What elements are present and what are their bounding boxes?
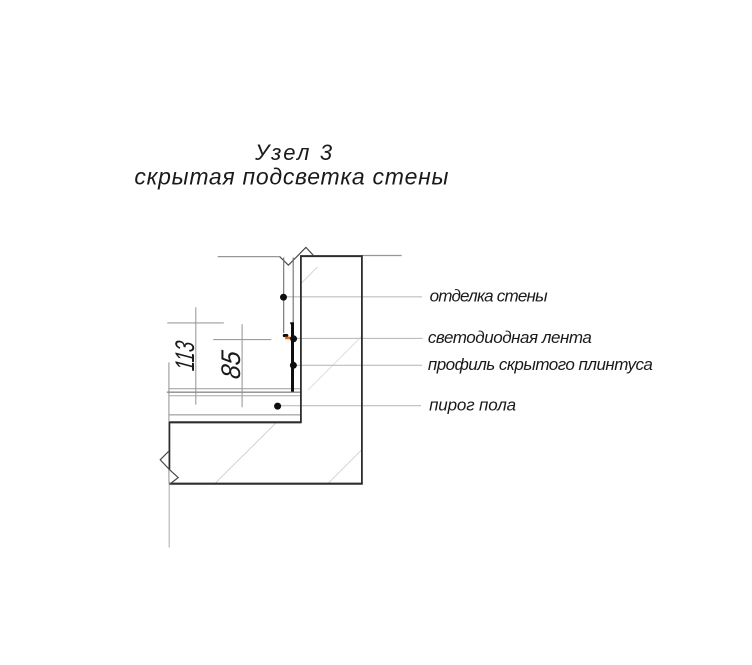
svg-text:профиль скрытого плинтуса: профиль скрытого плинтуса [428, 355, 653, 374]
svg-text:пирог пола: пирог пола [429, 395, 516, 414]
svg-text:Узел 3: Узел 3 [254, 140, 333, 165]
svg-text:скрытая подсветка стены: скрытая подсветка стены [134, 163, 448, 189]
svg-text:светодиодная лента: светодиодная лента [428, 328, 592, 347]
svg-text:отделка стены: отделка стены [430, 287, 548, 306]
svg-text:113: 113 [169, 339, 200, 372]
svg-text:85: 85 [215, 348, 246, 381]
